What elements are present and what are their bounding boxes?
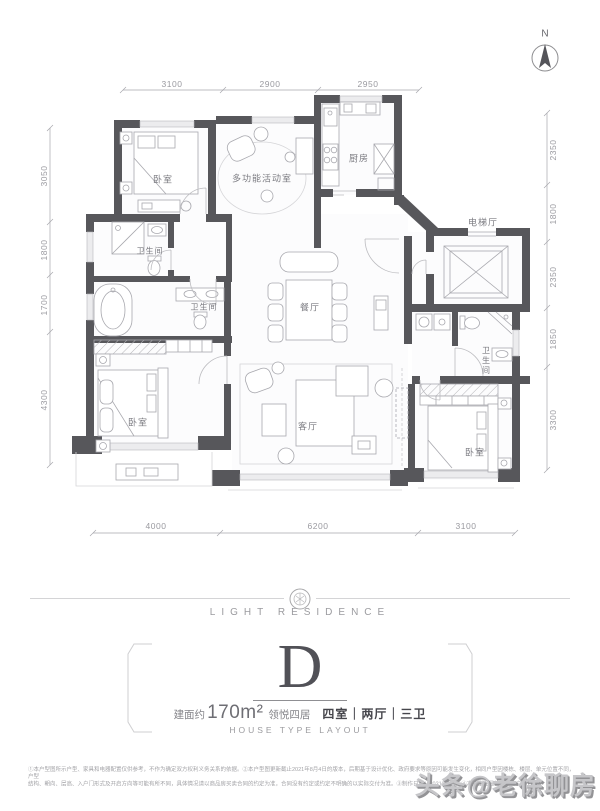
room-label-dining: 餐厅	[300, 301, 320, 314]
room-label-bedroom-top-left: 卧室	[153, 173, 173, 186]
logo-text: LIGHT RESIDENCE	[0, 607, 600, 618]
subtitle-en: HOUSE TYPE LAYOUT	[0, 725, 600, 735]
room-label-elevator-hall: 电梯厅	[468, 216, 498, 229]
room-label-bath-right: 卫生间	[481, 346, 492, 376]
dim-left-2: 1800	[39, 240, 49, 261]
dim-bottom-1: 4000	[146, 521, 167, 531]
foyer-cabinet-icon	[374, 296, 388, 330]
area-value: 170m²	[207, 702, 263, 724]
watermark: 头条@老徐聊房	[415, 766, 596, 802]
room-label-kitchen: 厨房	[349, 152, 369, 165]
dim-top-2: 2900	[260, 79, 281, 89]
room-label-bath-master: 卫生间	[191, 302, 218, 313]
divider-right	[316, 598, 570, 599]
unit-underline	[253, 700, 347, 701]
room-label-bedroom-bottom-left: 卧室	[128, 416, 148, 429]
area-prefix: 建面约	[174, 707, 206, 722]
unit-letter: D	[0, 636, 600, 698]
dim-right-5: 3300	[548, 410, 558, 431]
room-label-multi-function: 多功能活动室	[232, 172, 292, 185]
dim-right-3: 2350	[548, 267, 558, 288]
dim-left-1: 3050	[39, 166, 49, 187]
floorplan-drawing	[0, 0, 600, 560]
dim-bottom-2: 6200	[308, 521, 329, 531]
room-label-living: 客厅	[298, 420, 318, 433]
room-label-bedroom-bottom-right: 卧室	[465, 446, 485, 459]
floorplan-page: N 3100 2900 2950 3050 1800 1700 4300 235…	[0, 0, 600, 811]
dim-right-2: 1800	[548, 204, 558, 225]
wardrobe-icon-bedroom-right	[420, 384, 498, 405]
dim-top-1: 3100	[162, 79, 183, 89]
dim-left-3: 1700	[39, 295, 49, 316]
dim-right-4: 1850	[548, 329, 558, 350]
wardrobe-icon-master	[94, 340, 212, 354]
series-name: 领悦四居	[268, 707, 310, 722]
dim-top-3: 2950	[358, 79, 379, 89]
north-arrow-icon	[532, 44, 558, 71]
dim-bottom-3: 3100	[456, 521, 477, 531]
divider-left	[30, 598, 284, 599]
room-label-bath-upper: 卫生间	[137, 246, 164, 257]
dim-right-1: 2350	[548, 140, 558, 161]
north-label: N	[541, 29, 548, 40]
area-line: 建面约 170m² 领悦四居 四室｜两厅｜三卫	[0, 702, 600, 724]
dim-left-4: 4300	[39, 390, 49, 411]
layout-spec: 四室｜两厅｜三卫	[322, 705, 426, 722]
